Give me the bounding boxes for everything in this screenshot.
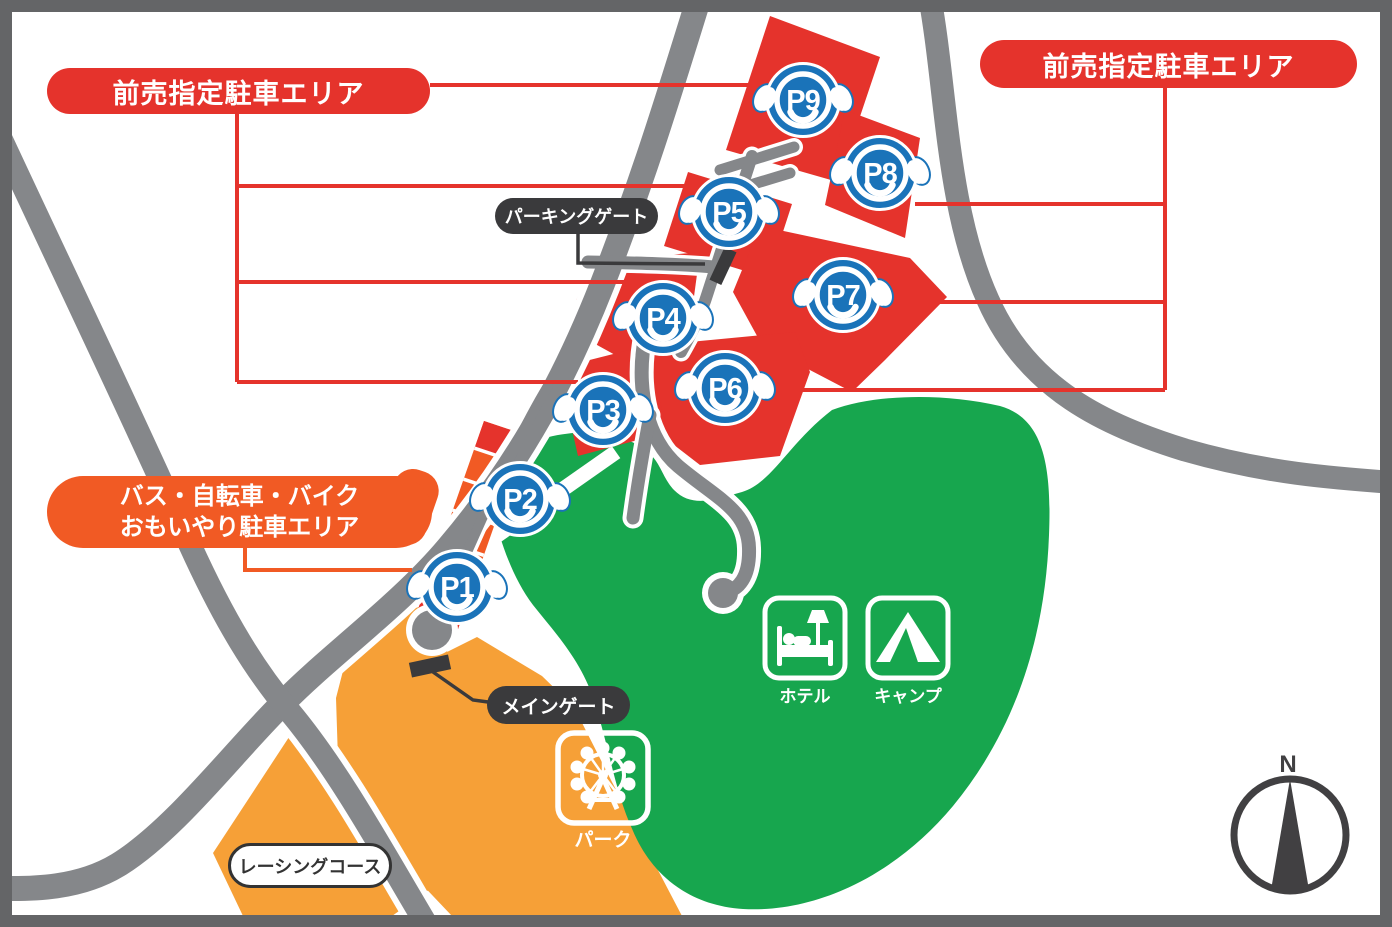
- bus-bike-line2: おもいやり駐車エリア: [120, 512, 360, 543]
- parking-icon-label: P8: [863, 158, 897, 190]
- racing-course-label: レーシングコース: [228, 843, 392, 888]
- parking-icon-label: P9: [786, 85, 820, 117]
- parking-gate-text: パーキングゲート: [505, 203, 648, 229]
- reserved-area-text: 前売指定駐車エリア: [1043, 45, 1295, 84]
- parking-icon-label: P2: [503, 484, 536, 516]
- parking-icon-label: P1: [440, 572, 474, 604]
- parking-icon-label: P5: [712, 197, 746, 229]
- reserved-area-label-right: 前売指定駐車エリア: [980, 40, 1357, 88]
- camp-label: キャンプ: [874, 686, 942, 706]
- main-gate-label: メインゲート: [487, 686, 630, 724]
- park-label: パーク: [574, 829, 631, 851]
- bus-bike-line1: バス・自転車・バイク: [120, 481, 360, 512]
- reserved-area-label-left: 前売指定駐車エリア: [47, 68, 430, 114]
- racing-course-text: レーシングコース: [239, 853, 382, 879]
- parking-icon-label: P3: [586, 395, 620, 427]
- reserved-area-text: 前売指定駐車エリア: [113, 72, 365, 111]
- compass-north-label: N: [1279, 751, 1296, 778]
- parking-icon-label: P4: [646, 303, 680, 335]
- road-end-dot: [708, 578, 738, 608]
- parking-gate-label: パーキングゲート: [495, 198, 658, 234]
- parking-map: P9 P8 P5 P7 P4 P6 P3 P2 P1 ホテル キ: [0, 0, 1392, 927]
- hotel-label: ホテル: [780, 687, 831, 706]
- main-gate-text: メインゲート: [501, 692, 615, 719]
- parking-icon-label: P6: [708, 373, 742, 405]
- parking-icon-label: P7: [826, 280, 859, 312]
- bus-bike-area-label: バス・自転車・バイク おもいやり駐車エリア: [47, 476, 432, 548]
